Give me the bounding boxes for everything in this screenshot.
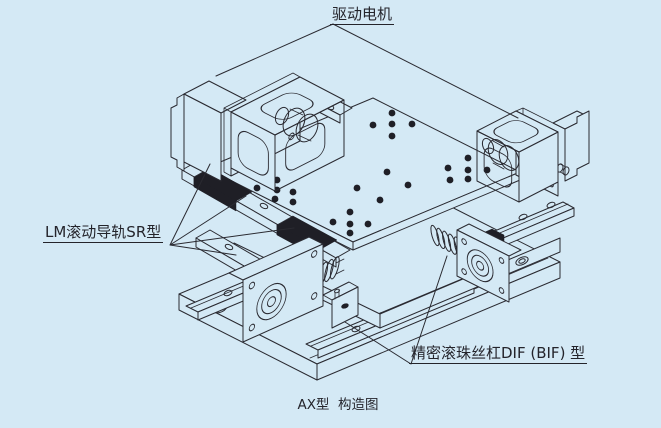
label-lm-guide: LM滚动导轨SR型	[43, 223, 163, 243]
label-ball-screw: 精密滚珠丝杠DIF (BIF) 型	[409, 344, 587, 364]
label-drive-motor: 驱动电机	[330, 5, 394, 25]
motor-left-rear-cap	[171, 94, 184, 171]
diagram-canvas: 驱动电机 LM滚动导轨SR型 精密滚珠丝杠DIF (BIF) 型 AX型 构造图	[0, 0, 661, 428]
figure-caption: AX型 构造图	[238, 393, 438, 413]
